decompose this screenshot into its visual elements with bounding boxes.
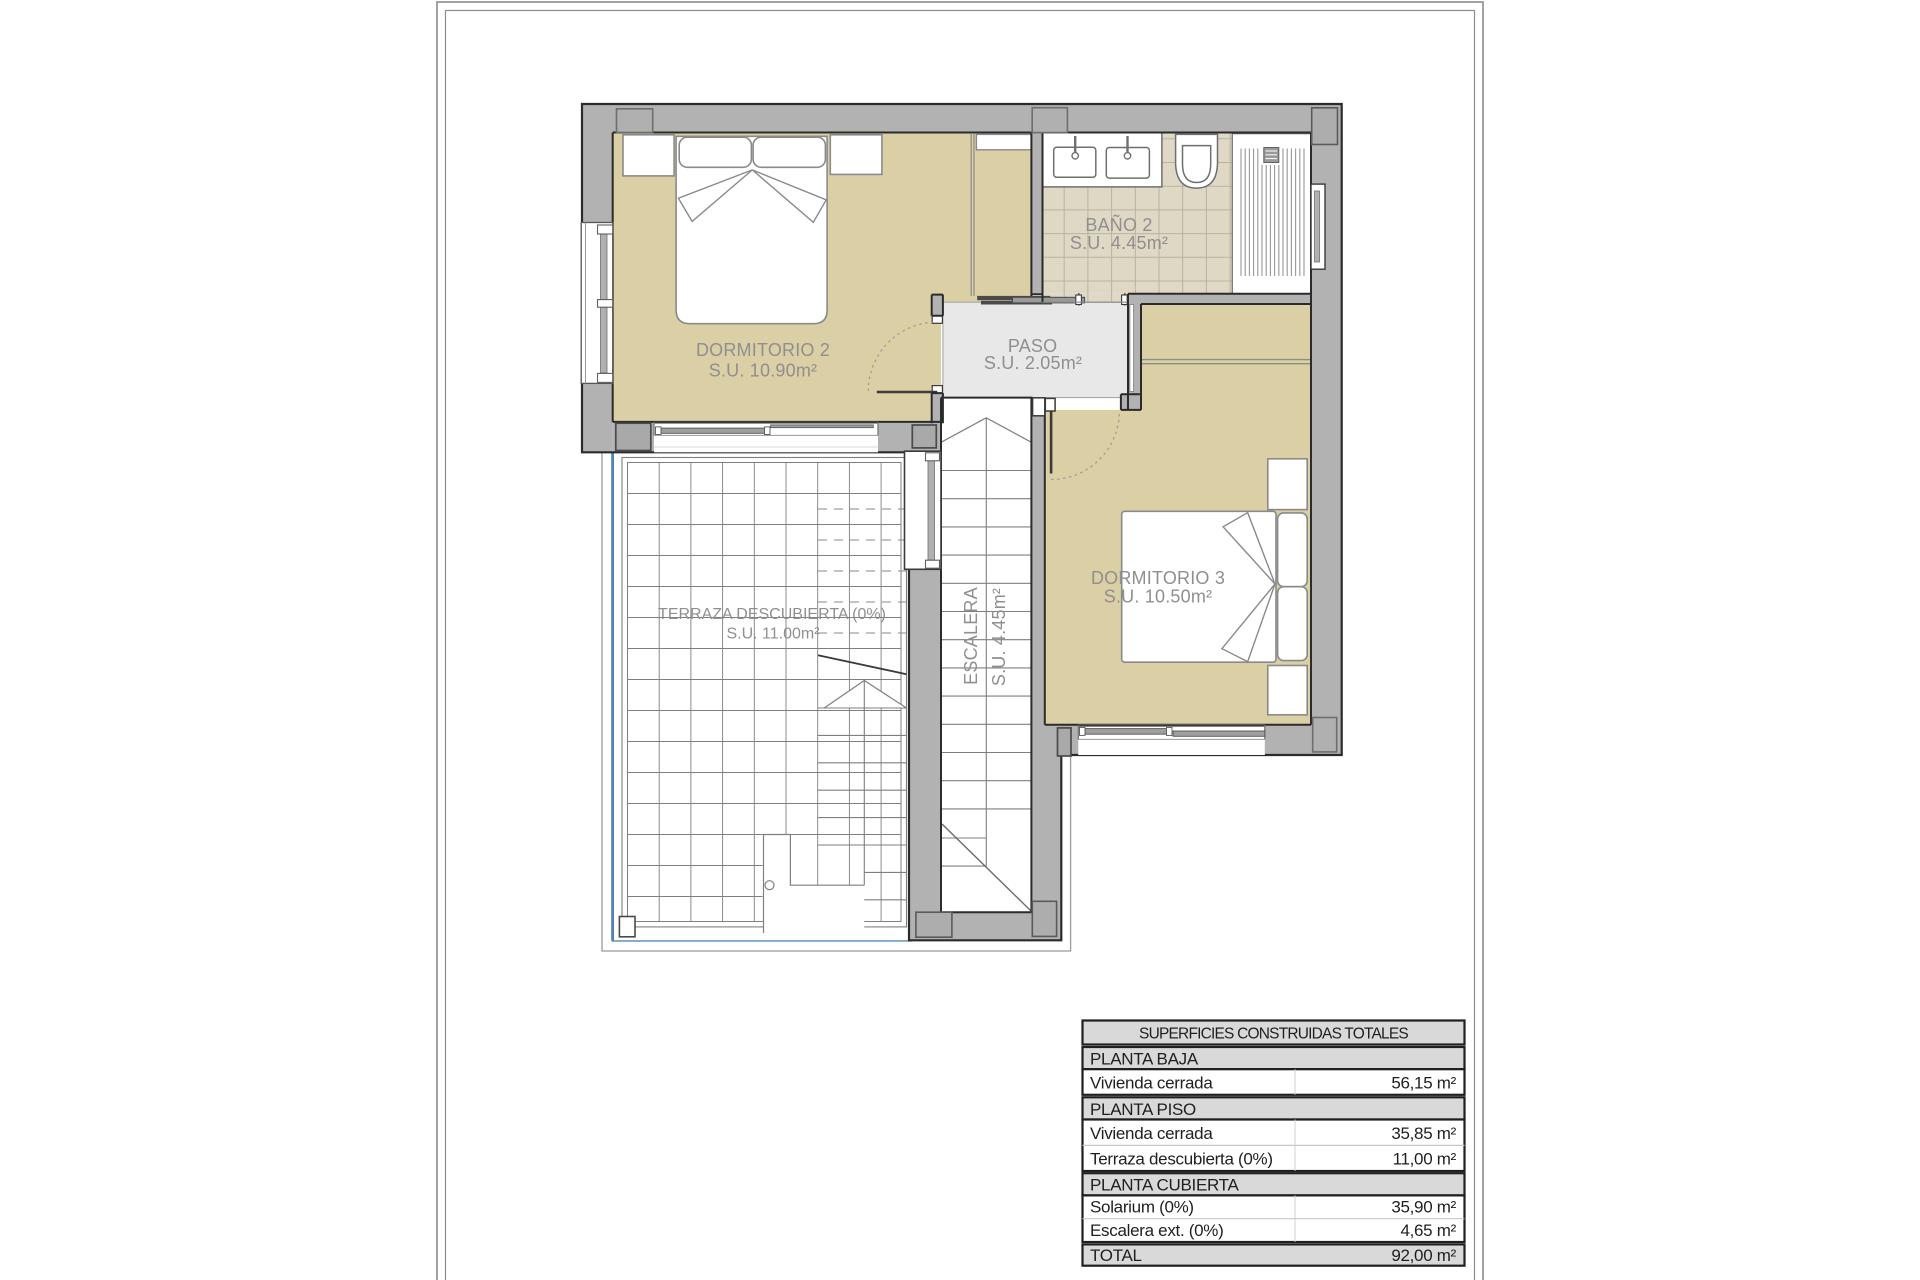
svg-text:Terraza descubierta (0%): Terraza descubierta (0%) — [1090, 1150, 1273, 1169]
svg-text:Vivienda cerrada: Vivienda cerrada — [1090, 1124, 1213, 1143]
svg-text:SUPERFICIES CONSTRUIDAS TOTALE: SUPERFICIES CONSTRUIDAS TOTALES — [1139, 1026, 1408, 1043]
svg-text:S.U. 10.90m²: S.U. 10.90m² — [709, 361, 817, 381]
svg-text:S.U. 10.50m²: S.U. 10.50m² — [1104, 587, 1212, 607]
svg-text:TERRAZA DESCUBIERTA (0%): TERRAZA DESCUBIERTA (0%) — [658, 606, 886, 623]
svg-text:BAÑO 2: BAÑO 2 — [1085, 214, 1152, 235]
svg-text:35,85 m²: 35,85 m² — [1391, 1124, 1456, 1143]
svg-text:4,65 m²: 4,65 m² — [1400, 1221, 1456, 1240]
svg-text:56,15 m²: 56,15 m² — [1391, 1074, 1456, 1093]
svg-text:S.U. 11.00m²: S.U. 11.00m² — [726, 626, 820, 643]
svg-text:PLANTA PISO: PLANTA PISO — [1090, 1100, 1196, 1119]
svg-text:ESCALERA: ESCALERA — [961, 587, 981, 685]
svg-text:PLANTA CUBIERTA: PLANTA CUBIERTA — [1090, 1176, 1240, 1195]
svg-text:Vivienda cerrada: Vivienda cerrada — [1090, 1074, 1213, 1093]
svg-text:S.U. 2.05m²: S.U. 2.05m² — [984, 353, 1082, 373]
svg-text:Escalera ext. (0%): Escalera ext. (0%) — [1090, 1221, 1223, 1240]
svg-text:35,90 m²: 35,90 m² — [1391, 1198, 1456, 1217]
svg-text:TOTAL: TOTAL — [1090, 1246, 1142, 1265]
svg-text:S.U. 4.45m²: S.U. 4.45m² — [989, 588, 1009, 686]
svg-text:S.U. 4.45m²: S.U. 4.45m² — [1070, 233, 1168, 253]
svg-text:DORMITORIO 3: DORMITORIO 3 — [1091, 568, 1225, 588]
svg-text:Solarium (0%): Solarium (0%) — [1090, 1198, 1194, 1217]
svg-text:92,00 m²: 92,00 m² — [1391, 1246, 1456, 1265]
svg-text:PLANTA BAJA: PLANTA BAJA — [1090, 1050, 1199, 1069]
svg-text:DORMITORIO 2: DORMITORIO 2 — [696, 340, 830, 360]
svg-text:11,00 m²: 11,00 m² — [1393, 1150, 1457, 1169]
